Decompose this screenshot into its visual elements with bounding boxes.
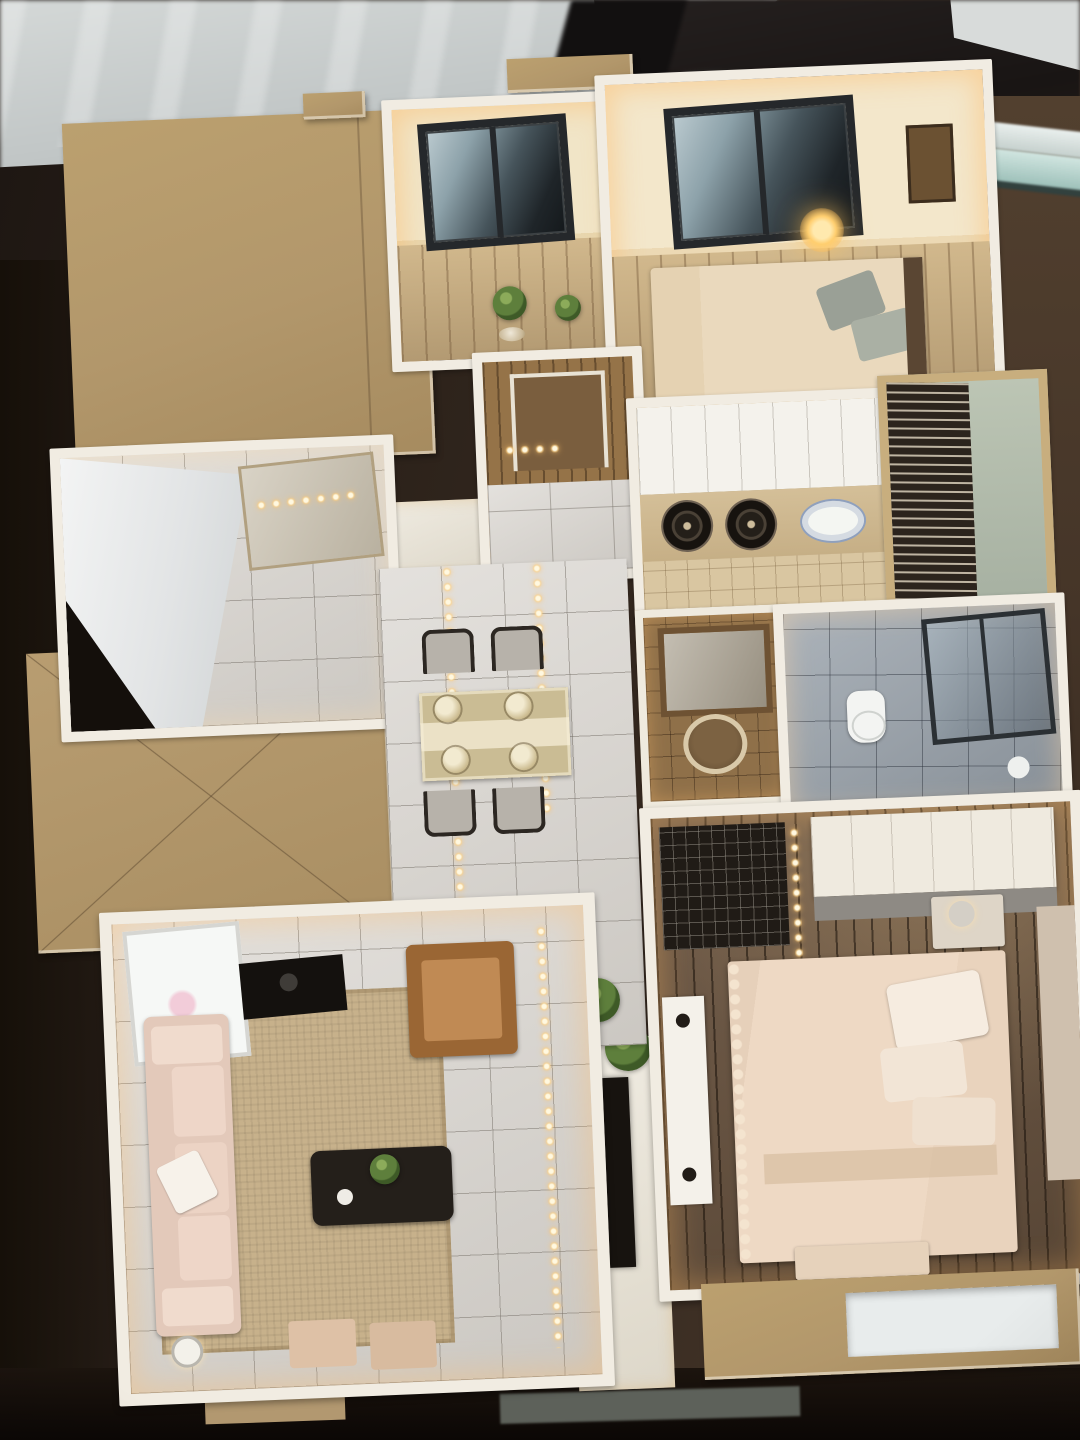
vanity-mirror [657,624,773,718]
dining-table [419,688,571,782]
master-bedroom [639,790,1080,1302]
roof-panel-main [62,109,436,469]
coffee-table-cup [337,1189,354,1206]
roof-tab-small [303,91,366,120]
kitchen [626,387,903,626]
place-setting-3 [442,746,469,773]
window-mullion [489,126,503,237]
dining-chair-top-right [490,625,544,671]
armchair-seat [421,957,502,1041]
ottoman-right [369,1320,437,1370]
bedroom2-wall-art [905,123,956,204]
place-setting-2 [505,693,532,720]
master-wardrobe [810,807,1057,897]
laundry-balcony [877,369,1057,612]
vanity-basin [682,713,748,776]
toilet [846,690,886,744]
study-window [417,113,575,251]
stove-burner-right [724,498,778,552]
coffee-table [310,1145,455,1226]
sofa-arm-top [151,1024,224,1065]
master-bed [728,950,1018,1263]
foyer-wardrobe-lights [256,490,360,510]
sofa [144,1014,242,1337]
kitchen-plate [799,498,867,545]
toilet-seat [851,710,886,741]
bed-pillow-1 [886,969,991,1051]
bed-pillow-2 [880,1040,969,1103]
shower-glass-divider [979,619,994,735]
shower-glass-enclosure [922,608,1058,745]
entry-hall [472,346,652,585]
photo-scene [0,0,1080,1440]
coffee-table-plant [369,1154,400,1185]
bed-pillow-3 [912,1097,996,1146]
living-room [99,892,615,1406]
nightstand-lamp [948,900,975,927]
window-mullion [754,110,770,235]
stove-burner-left [660,499,714,553]
bedroom-secondary [594,59,1006,425]
roof-seam [357,111,373,456]
kitchen-counter [640,485,891,562]
tv-cabinet [239,954,348,1020]
master-dresser [662,996,713,1205]
bathroom [773,592,1074,824]
exterior-window-recess [845,1285,1059,1357]
sofa-cushion-1 [171,1065,227,1137]
bed-scalloped-trim [728,962,753,1264]
balcony-lattice-screen [886,382,977,601]
bed-throw-band [764,1144,998,1184]
master-headboard [1037,905,1080,1180]
vanity-washroom [635,604,795,810]
hall-door [510,370,609,471]
sofa-arm-bottom [162,1285,235,1326]
balcony-floor [968,378,1047,599]
armchair [405,941,518,1058]
table-runner [420,717,570,751]
living-led-string [537,925,563,1348]
master-window-screen [659,823,790,951]
nightstand [931,894,1005,949]
bathroom-bin [1007,756,1030,779]
dining-chair-bottom-left [423,789,477,837]
foyer-closet-room [49,434,405,742]
dining-chair-top-left [421,628,475,674]
master-led-string-window [789,827,803,977]
exterior-wall-bottom [701,1268,1080,1380]
dresser-knob-bottom [682,1167,697,1182]
foyer-mirror-wardrobe [238,451,384,570]
apartment-scale-model [2,51,1080,1423]
sofa-cushion-3 [177,1215,232,1281]
speaker-circle [280,972,300,992]
kitchen-cabinets [636,398,887,496]
ottoman-left [289,1319,357,1369]
dresser-knob-top [675,1013,690,1028]
place-setting-1 [434,696,461,723]
dining-chair-bottom-right [492,786,546,834]
place-setting-4 [510,743,537,770]
